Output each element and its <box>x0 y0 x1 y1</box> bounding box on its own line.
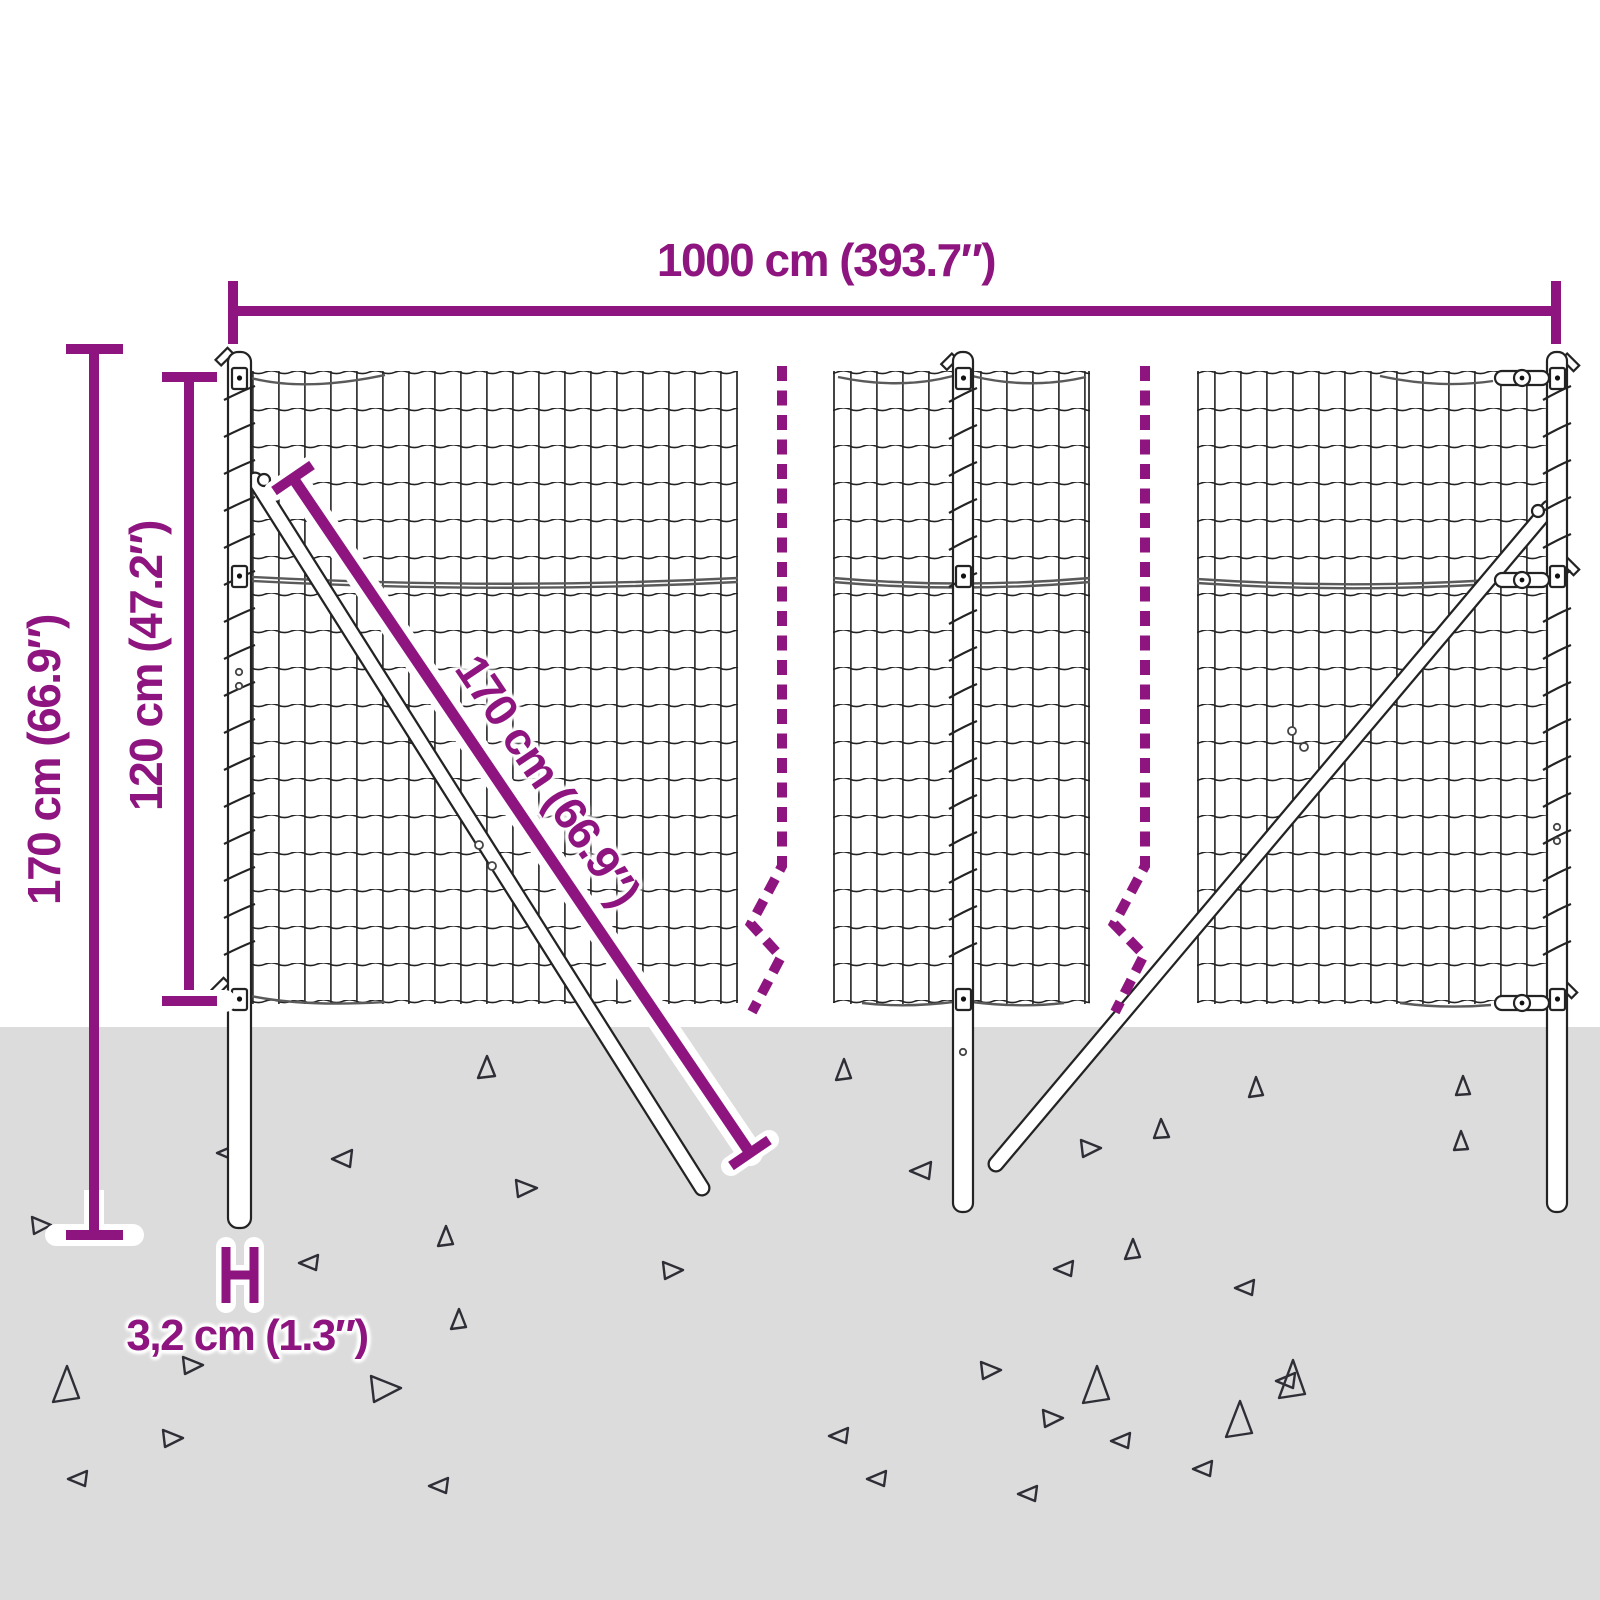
panel-break-right <box>1114 366 1145 1012</box>
dim-label-post-diameter: 3,2 cm (1.3″) <box>126 1311 367 1361</box>
fence-dimension-diagram: 1000 cm (393.7″) 170 cm (66.9″) 120 cm (… <box>0 0 1600 1600</box>
wire-tensioner-bottom <box>1495 995 1549 1011</box>
mesh-panel-right <box>1197 371 1548 1004</box>
dim-label-total-height: 170 cm (66.9″) <box>17 615 71 905</box>
dim-label-mesh-height: 120 cm (47.2″) <box>119 521 173 811</box>
dimension-total-width-line <box>230 281 1557 344</box>
wire-tensioner-top <box>1495 370 1549 386</box>
wire-tensioner-middle <box>1495 572 1549 588</box>
dim-label-total-width: 1000 cm (393.7″) <box>657 233 995 287</box>
panel-break-left <box>751 366 782 1012</box>
